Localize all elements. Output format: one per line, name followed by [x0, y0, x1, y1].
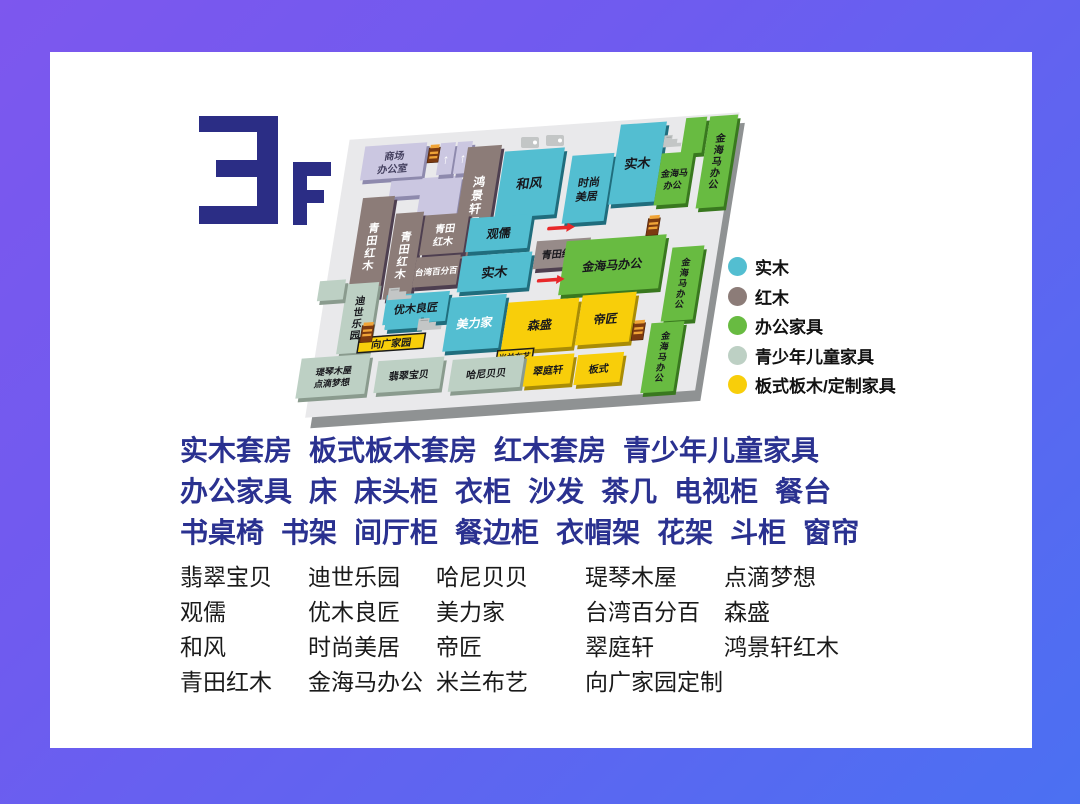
- map-block-qinqin: 瑅琴木屋点滴梦想: [295, 354, 374, 403]
- brand-name: 台湾百分百: [585, 593, 700, 627]
- legend-label: 办公家具: [755, 313, 823, 338]
- legend-dot-solid_wood: [728, 257, 747, 276]
- brand-name: 优木良匠: [308, 593, 400, 627]
- map-block-qingtian-2line: 青田红木: [418, 212, 472, 259]
- category-word: 办公家具: [180, 470, 292, 510]
- brand-name: 翡翠宝贝: [180, 558, 272, 592]
- legend-label: 实木: [755, 254, 789, 279]
- brand-name: 帝匠: [436, 628, 482, 662]
- gradient-frame: 3F商场办公室↑↑鸿景轩红木和风时尚美居实木金海马办公金海马办公青田红木青田红木…: [0, 0, 1080, 804]
- brand-name: 和风: [180, 628, 226, 662]
- category-word: 衣帽架: [556, 511, 640, 551]
- category-word: 红木套房: [494, 429, 606, 469]
- map-block-label: 森盛: [526, 316, 553, 333]
- legend-item-office: 办公家具: [728, 311, 896, 341]
- category-line-2: 办公家具床床头柜衣柜沙发茶几电视柜餐台: [180, 469, 880, 510]
- map-block-hefeng: 和风: [494, 147, 568, 222]
- floor-plan: 商场办公室↑↑鸿景轩红木和风时尚美居实木金海马办公金海马办公青田红木青田红木青田…: [290, 112, 746, 430]
- brand-name: 金海马办公: [308, 663, 423, 697]
- category-word: 实木套房: [180, 429, 292, 469]
- brand-name: 观儒: [180, 593, 226, 627]
- legend-dot-panel: [728, 375, 747, 394]
- legend: 实木红木办公家具青少年儿童家具板式板木/定制家具: [728, 252, 896, 400]
- category-word: 间厅柜: [354, 511, 438, 551]
- category-word: 板式板木套房: [309, 429, 477, 469]
- map-block-dijiang: 帝匠: [574, 291, 640, 349]
- legend-item-rosewood: 红木: [728, 282, 896, 312]
- map-block-feicui: 翡翠宝贝: [373, 356, 448, 397]
- map-block-label: 观儒: [486, 225, 512, 242]
- brand-name: 哈尼贝贝: [436, 558, 528, 592]
- restroom-icon: [546, 135, 564, 146]
- legend-dot-office: [728, 316, 747, 335]
- category-headlines: 实木套房板式板木套房红木套房青少年儿童家具办公家具床床头柜衣柜沙发茶几电视柜餐台…: [180, 428, 880, 551]
- map-block-label: 实木: [480, 263, 509, 281]
- category-word: 餐台: [775, 470, 831, 510]
- category-word: 床: [309, 470, 337, 510]
- category-word: 青少年儿童家具: [623, 429, 819, 469]
- brand-name: 时尚美居: [308, 628, 400, 662]
- brand-name: 青田红木: [180, 663, 272, 697]
- brand-name: 鸿景轩红木: [724, 628, 839, 662]
- category-word: 书桌椅: [180, 511, 264, 551]
- category-word: 衣柜: [455, 470, 511, 510]
- brand-name: 米兰布艺: [436, 663, 528, 697]
- map-block-sensheng: 森盛: [500, 297, 582, 355]
- map-block-label: 帝匠: [593, 310, 619, 327]
- category-word: 茶几: [601, 470, 657, 510]
- legend-dot-rosewood: [728, 287, 747, 306]
- brand-name: 瑅琴木屋: [585, 558, 677, 592]
- category-word: 床头柜: [354, 470, 438, 510]
- category-line-3: 书桌椅书架间厅柜餐边柜衣帽架花架斗柜窗帘: [180, 510, 880, 551]
- map-block-label: 实木: [623, 154, 652, 172]
- legend-label: 板式板木/定制家具: [755, 372, 896, 397]
- brand-name: 迪世乐园: [308, 558, 400, 592]
- map-block-sage-square: [316, 279, 349, 305]
- category-word: 斗柜: [730, 511, 786, 551]
- category-word: 餐边柜: [455, 511, 539, 551]
- legend-item-solid_wood: 实木: [728, 252, 896, 282]
- map-block-label: 美力家: [455, 314, 494, 331]
- legend-item-children: 青少年儿童家具: [728, 341, 896, 371]
- map-block-label: 和风: [514, 175, 543, 192]
- restroom-icon: [521, 137, 539, 148]
- map-block-jinhaima-big: 金海马办公: [557, 234, 669, 299]
- legend-label: 青少年儿童家具: [755, 343, 874, 368]
- brand-name: 向广家园定制: [585, 663, 723, 697]
- category-line-1: 实木套房板式板木套房红木套房青少年儿童家具: [180, 428, 880, 469]
- category-word: 电视柜: [674, 470, 758, 510]
- brand-directory: 翡翠宝贝迪世乐园哈尼贝贝瑅琴木屋点滴梦想观儒优木良匠美力家台湾百分百森盛和风时尚…: [180, 558, 900, 698]
- map-block-hani: 哈尼贝贝: [447, 355, 528, 396]
- brand-name: 翠庭轩: [585, 628, 654, 662]
- map-block-shimu-mid: 实木: [456, 251, 535, 296]
- map-block-meilijia: 美力家: [442, 294, 510, 356]
- floor-3f-logo: 3F: [199, 116, 331, 225]
- map-block-taiwan: 台湾百分百: [411, 254, 463, 291]
- category-word: 沙发: [528, 470, 584, 510]
- brand-name: 森盛: [724, 593, 770, 627]
- map-block-shangchang: 商场办公室: [359, 142, 430, 185]
- map-block-cuiting: 翠庭轩: [521, 353, 577, 391]
- map-block-guanru: 观儒: [464, 214, 535, 257]
- legend-label: 红木: [755, 284, 789, 309]
- category-word: 窗帘: [803, 511, 859, 551]
- legend-item-panel: 板式板木/定制家具: [728, 370, 896, 400]
- category-word: 花架: [657, 511, 713, 551]
- brand-name: 美力家: [436, 593, 505, 627]
- category-word: 书架: [281, 511, 337, 551]
- legend-dot-children: [728, 346, 747, 365]
- brand-name: 点滴梦想: [724, 558, 816, 592]
- map-block-banshi: 板式: [573, 352, 627, 389]
